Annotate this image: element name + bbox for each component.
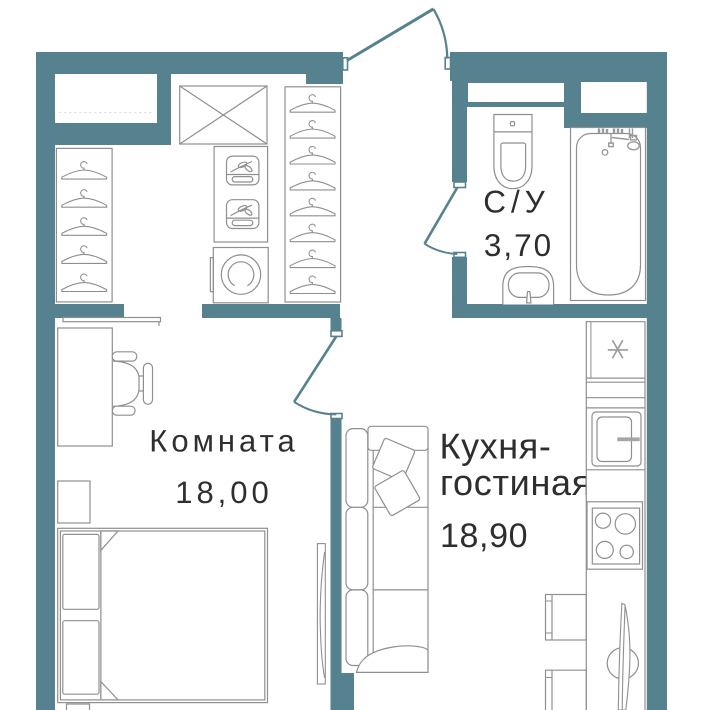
svg-text:Комната: Комната (149, 423, 298, 458)
svg-text:18,90: 18,90 (440, 517, 528, 555)
svg-text:18,00: 18,00 (175, 475, 273, 510)
svg-text:Кухня-: Кухня- (440, 425, 552, 466)
svg-text:гостиная: гостиная (440, 462, 592, 503)
svg-text:3,70: 3,70 (484, 227, 553, 263)
svg-text:С/У: С/У (483, 184, 550, 220)
